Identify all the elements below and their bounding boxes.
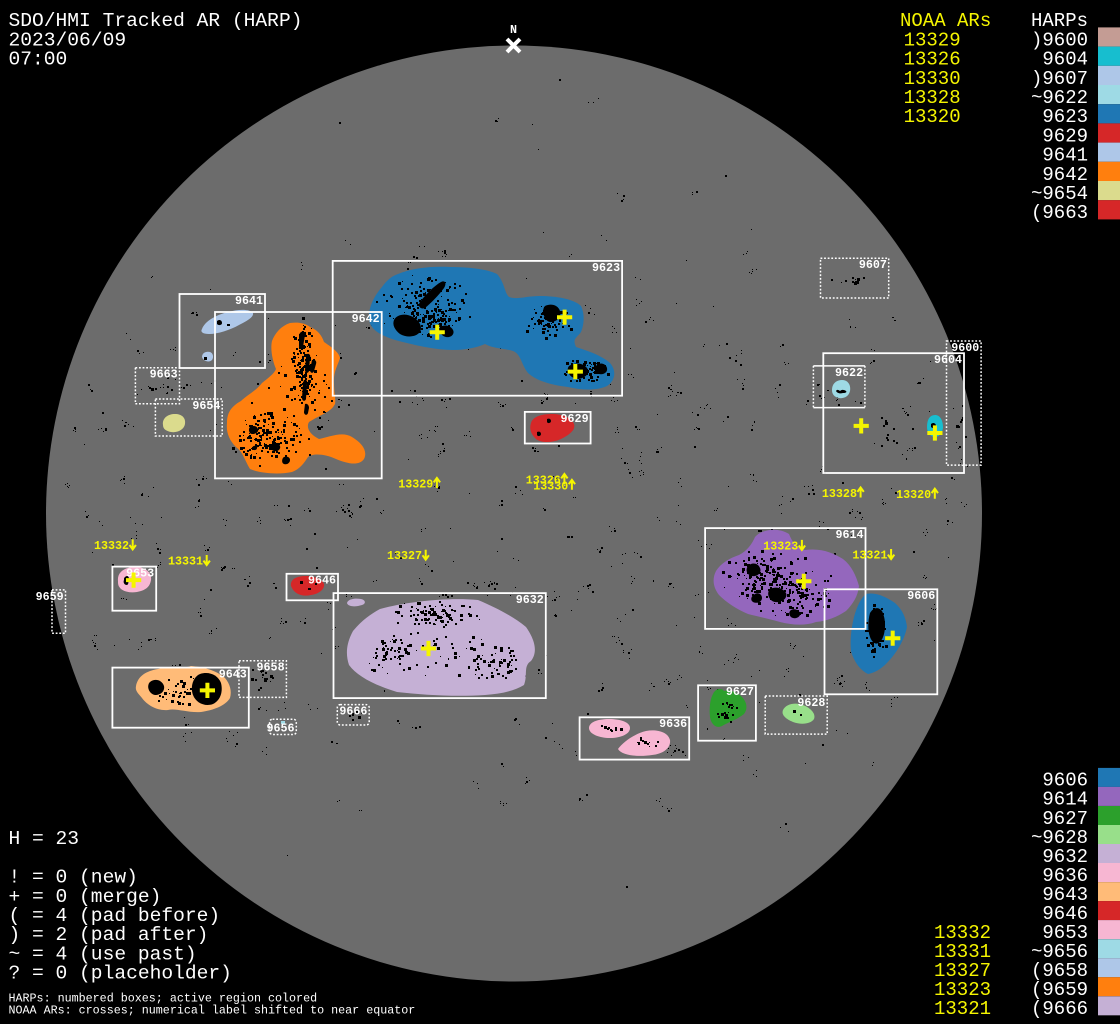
- svg-text:NOAA ARs: crosses; numerical l: NOAA ARs: crosses; numerical label shift…: [9, 1004, 416, 1018]
- svg-text:9641: 9641: [235, 294, 263, 308]
- svg-text:13320: 13320: [904, 106, 961, 128]
- svg-text:(9666: (9666: [1031, 998, 1088, 1020]
- svg-text:9646: 9646: [308, 574, 336, 588]
- svg-text:9656: 9656: [266, 721, 294, 735]
- svg-text:9629: 9629: [561, 412, 589, 426]
- svg-text:13330: 13330: [533, 479, 568, 493]
- svg-text:N: N: [510, 23, 517, 37]
- svg-text:9623: 9623: [592, 261, 620, 275]
- svg-text:13328: 13328: [822, 487, 857, 501]
- svg-text:9614: 9614: [835, 528, 863, 542]
- svg-text:13331: 13331: [168, 555, 203, 569]
- svg-text:? = 0 (placeholder): ? = 0 (placeholder): [9, 963, 232, 985]
- svg-text:9606: 9606: [907, 589, 935, 603]
- svg-text:9622: 9622: [835, 366, 863, 380]
- svg-text:9654: 9654: [192, 399, 220, 413]
- svg-text:13321: 13321: [852, 549, 887, 563]
- svg-text:(9663: (9663: [1031, 202, 1088, 224]
- svg-text:9643: 9643: [219, 668, 247, 682]
- svg-text:9636: 9636: [659, 717, 687, 731]
- svg-text:13323: 13323: [763, 539, 798, 553]
- svg-text:9600: 9600: [951, 341, 979, 355]
- svg-text:9604: 9604: [934, 353, 962, 367]
- svg-text:9642: 9642: [352, 312, 380, 326]
- svg-text:13329: 13329: [398, 478, 433, 492]
- svg-text:9628: 9628: [797, 696, 825, 710]
- svg-text:13321: 13321: [934, 998, 991, 1020]
- svg-text:07:00: 07:00: [9, 49, 68, 71]
- svg-text:13320: 13320: [896, 488, 931, 502]
- svg-text:9666: 9666: [339, 705, 367, 719]
- svg-text:9658: 9658: [257, 661, 285, 675]
- svg-text:9632: 9632: [516, 593, 544, 607]
- svg-text:H = 23: H = 23: [9, 828, 80, 850]
- svg-text:13327: 13327: [387, 549, 422, 563]
- svg-text:13332: 13332: [94, 539, 129, 553]
- svg-text:9607: 9607: [859, 258, 887, 272]
- svg-text:9663: 9663: [150, 368, 178, 382]
- svg-text:9627: 9627: [726, 685, 754, 699]
- svg-text:9659: 9659: [36, 590, 64, 604]
